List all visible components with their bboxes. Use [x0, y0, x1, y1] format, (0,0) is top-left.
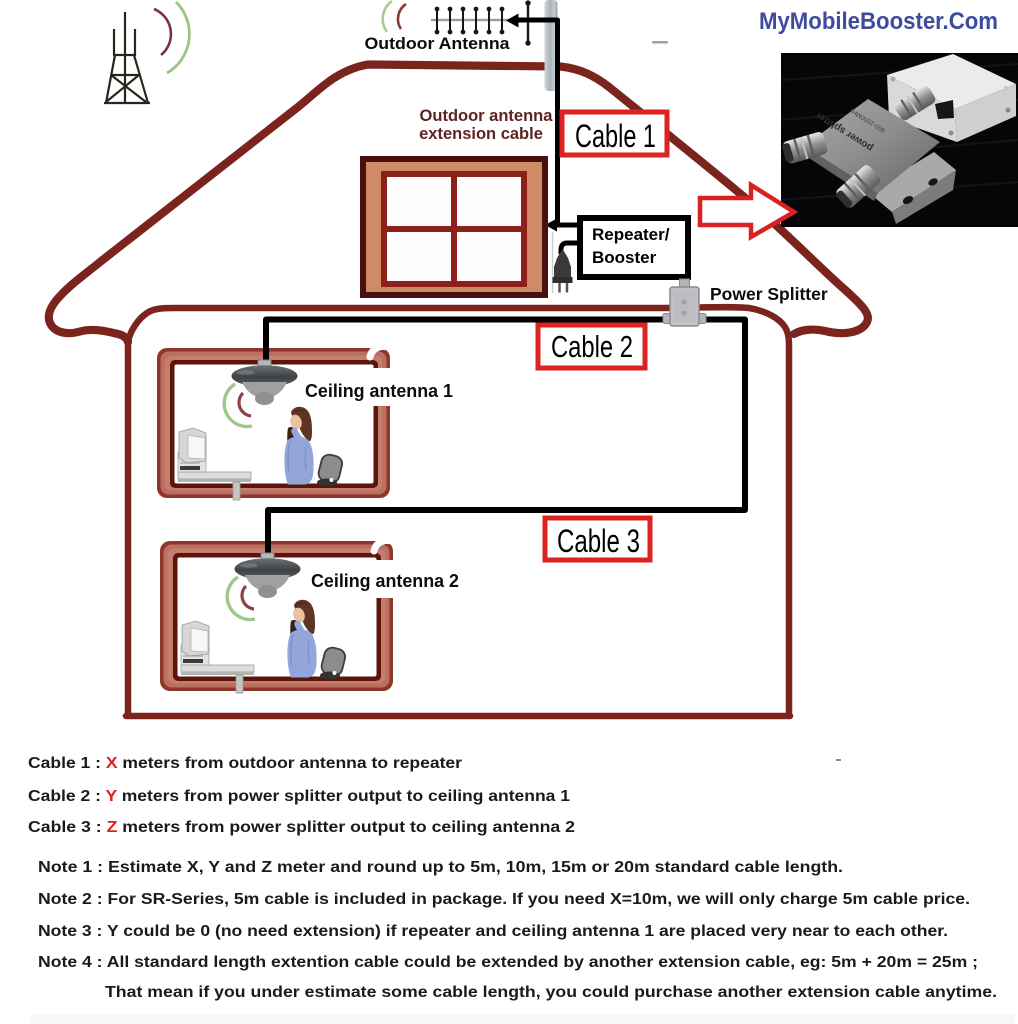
- svg-text:Cable 1 : X meters from outdoo: Cable 1 : X meters from outdoor antenna …: [28, 755, 462, 772]
- svg-text:Cable 2 : Y meters from power: Cable 2 : Y meters from power splitter o…: [28, 788, 570, 805]
- svg-text:Cable 1: Cable 1: [575, 118, 656, 154]
- svg-text:Ceiling antenna 2: Ceiling antenna 2: [311, 571, 459, 591]
- svg-text:Outdoor Antenna: Outdoor Antenna: [365, 35, 511, 53]
- svg-text:extension cable: extension cable: [419, 125, 543, 143]
- svg-text:Note 2 : For SR-Series, 5m cab: Note 2 : For SR-Series, 5m cable is incl…: [38, 891, 970, 908]
- svg-text:Cable 2: Cable 2: [551, 329, 633, 364]
- svg-text:Note 1 : Estimate X, Y and Z m: Note 1 : Estimate X, Y and Z meter and r…: [38, 859, 843, 876]
- svg-text:Ceiling antenna 1: Ceiling antenna 1: [305, 381, 453, 401]
- svg-text:Note 3 : Y could be 0 (no need: Note 3 : Y could be 0 (no need extension…: [38, 923, 948, 940]
- svg-text:Cable 3: Cable 3: [557, 523, 640, 559]
- svg-text:Note 4 : All standard length e: Note 4 : All standard length extention c…: [38, 954, 978, 971]
- svg-text:Repeater/: Repeater/: [592, 225, 670, 244]
- svg-text:Cable 3 : Z meters from power: Cable 3 : Z meters from power splitter o…: [28, 819, 575, 836]
- svg-text:Booster: Booster: [592, 248, 657, 267]
- svg-text:Power Splitter: Power Splitter: [710, 284, 828, 304]
- svg-text:That mean if you under estimat: That mean if you under estimate some cab…: [105, 984, 997, 1001]
- svg-text:Outdoor antenna: Outdoor antenna: [420, 107, 554, 125]
- svg-text:MyMobileBooster.Com: MyMobileBooster.Com: [759, 8, 998, 35]
